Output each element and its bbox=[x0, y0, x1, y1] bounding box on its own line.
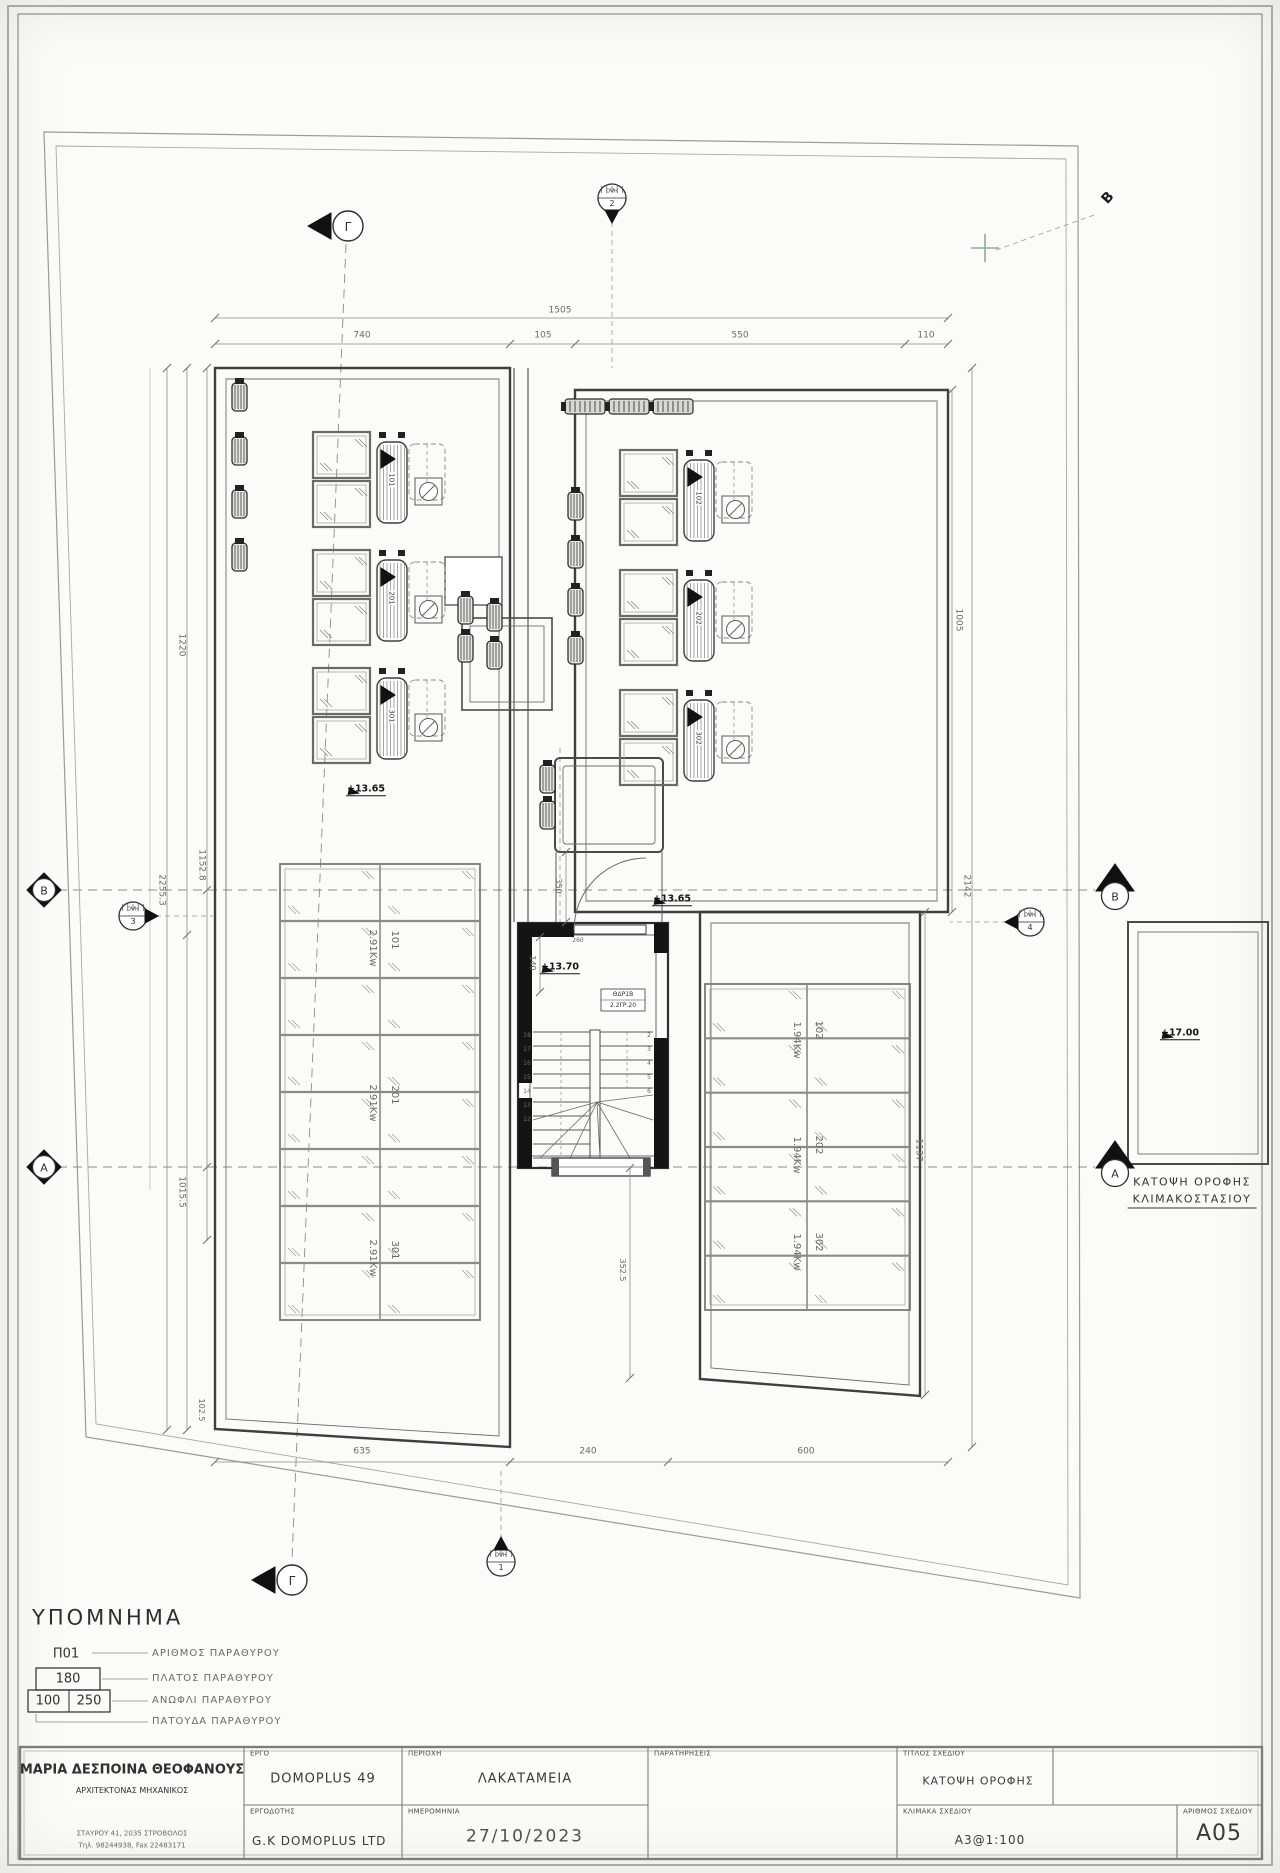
dim-right-2142: 2142 bbox=[962, 875, 971, 898]
detail-caption-line2: ΚΛΙΜΑΚΟΣΤΑΣΙΟΥ bbox=[1128, 1194, 1257, 1209]
grid-marker-gamma-top: Γ bbox=[345, 221, 352, 233]
titleblock-value-date: 27/10/2023 bbox=[466, 1829, 584, 1846]
titleblock-label-title: ΤΙΤΛΟΣ ΣΧΕΔΙΟΥ bbox=[903, 1751, 965, 1758]
dim-left-2255: 2255.3 bbox=[157, 874, 166, 906]
architect-role: ΑΡΧΙΤΕΚΤΟΝΑΣ ΜΗΧΑΝΙΚΟΣ bbox=[76, 1787, 188, 1795]
dim-right-1005: 1005 bbox=[954, 609, 963, 632]
titleblock-label-number: ΑΡΙΘΜΟΣ ΣΧΕΔΙΟΥ bbox=[1183, 1809, 1253, 1816]
legend-tag-number: Π01 bbox=[53, 1648, 79, 1661]
dim-stair-260: 260 bbox=[572, 938, 583, 944]
view-marker-4-name: ΟΨΗ bbox=[1024, 914, 1036, 919]
dim-top-105: 105 bbox=[534, 332, 551, 341]
dim-top-total: 1505 bbox=[549, 307, 572, 316]
heater-number-202: 202 bbox=[695, 610, 702, 625]
grid-marker-a-left: A bbox=[40, 1163, 48, 1174]
legend-item-window-sill: ΠΑΤΟΥΔΑ ΠΑΡΑΘΥΡΟΥ bbox=[152, 1717, 282, 1727]
dim-bottom-240: 240 bbox=[579, 1448, 596, 1457]
stair-door-tag-bottom: 2.2ΓΡ.20 bbox=[610, 1003, 636, 1009]
stair-step-left: 15 bbox=[523, 1075, 531, 1081]
level-roof-right: +13.65 bbox=[652, 894, 692, 906]
grid-marker-b-left: B bbox=[40, 886, 48, 897]
dim-bottom-635: 635 bbox=[353, 1448, 370, 1457]
pv-left-101-power: 2.91Kw bbox=[367, 929, 377, 966]
level-flag-icon bbox=[1158, 1027, 1177, 1048]
legend-tag-lintel-a: 100 bbox=[36, 1695, 61, 1708]
heater-number-302: 302 bbox=[695, 730, 702, 745]
view-marker-2-name: ΟΨΗ bbox=[606, 190, 618, 195]
stair-step-left: 13 bbox=[523, 1103, 531, 1109]
titleblock-value-title: ΚΑΤΟΨΗ ΟΡΟΦΗΣ bbox=[922, 1776, 1033, 1787]
pv-right-102-power: 1.94Kw bbox=[791, 1021, 801, 1058]
level-stair-roof: +17.00 bbox=[1160, 1028, 1200, 1040]
dim-stair-352: 352.5 bbox=[618, 1259, 626, 1282]
level-stair-landing: +13.70 bbox=[540, 962, 580, 974]
titleblock-value-project: DOMOPLUS 49 bbox=[270, 1773, 376, 1786]
view-marker-3-num: 3 bbox=[130, 918, 135, 926]
legend-tag-width: 180 bbox=[56, 1673, 81, 1686]
titleblock-label-area: ΠΕΡΙΟΧΗ bbox=[408, 1751, 442, 1758]
legend-item-window-lintel: ΑΝΩΦΛΙ ΠΑΡΑΘΥΡΟΥ bbox=[152, 1696, 272, 1706]
architect-phone: Τηλ. 98244938, Fax 22483171 bbox=[78, 1843, 185, 1850]
level-flag-icon bbox=[344, 783, 363, 804]
stair-step-right: 6 bbox=[647, 1089, 651, 1095]
heater-number-301: 301 bbox=[388, 708, 395, 723]
stair-step-right: 3 bbox=[647, 1047, 651, 1053]
stair-step-right: 4 bbox=[647, 1061, 651, 1067]
grid-marker-gamma-bottom: Γ bbox=[289, 1575, 296, 1587]
stair-step-left: 18 bbox=[523, 1033, 531, 1039]
legend-title: ΥΠΟΜΝΗΜΑ bbox=[32, 1608, 183, 1629]
plan-labels: 150574010555011012202255.31152.81015.510… bbox=[0, 0, 1280, 1873]
pv-left-201-power: 2.91Kw bbox=[367, 1084, 377, 1121]
level-flag-icon bbox=[538, 961, 557, 982]
view-marker-2-num: 2 bbox=[609, 200, 614, 208]
stair-step-left: 14 bbox=[523, 1089, 531, 1095]
heater-number-201: 201 bbox=[388, 590, 395, 605]
pv-left-301-id: 301 bbox=[389, 1240, 399, 1259]
pv-right-302-id: 302 bbox=[813, 1232, 823, 1251]
architect-name: ΜΑΡΙΑ ΔΕΣΠΟΙΝΑ ΘΕΟΦΑΝΟΥΣ bbox=[20, 1764, 244, 1777]
pv-right-102-id: 102 bbox=[813, 1020, 823, 1039]
titleblock-label-date: ΗΜΕΡΟΜΗΝΙΑ bbox=[408, 1809, 460, 1816]
pv-right-202-power: 1.94Kw bbox=[791, 1136, 801, 1173]
dim-top-110: 110 bbox=[917, 332, 934, 341]
titleblock-label-project: ΕΡΓΟ bbox=[250, 1751, 269, 1758]
titleblock-label-client: ΕΡΓΟΔΟΤΗΣ bbox=[250, 1809, 295, 1816]
dim-top-740: 740 bbox=[353, 332, 370, 341]
dim-left-102: 102.5 bbox=[197, 1399, 205, 1422]
dim-stair-350: 350 bbox=[554, 878, 562, 893]
legend-tag-lintel-b: 250 bbox=[77, 1695, 102, 1708]
grid-marker-b-right: B bbox=[1111, 892, 1119, 903]
level-flag-icon bbox=[650, 893, 669, 914]
stair-step-left: 12 bbox=[523, 1117, 531, 1123]
titleblock-label-scale: ΚΛΙΜΑΚΑ ΣΧΕΔΙΟΥ bbox=[903, 1809, 972, 1816]
view-marker-1-num: 1 bbox=[498, 1564, 503, 1572]
pv-left-101-id: 101 bbox=[389, 930, 399, 949]
level-roof-left: +13.65 bbox=[346, 784, 386, 796]
pv-right-302-power: 1.94Kw bbox=[791, 1233, 801, 1270]
architectural-drawing-sheet: 150574010555011012202255.31152.81015.510… bbox=[0, 0, 1280, 1873]
heater-number-101: 101 bbox=[388, 472, 395, 487]
view-marker-4-num: 4 bbox=[1027, 924, 1032, 932]
view-marker-1-name: ΟΨΗ bbox=[495, 1554, 507, 1559]
pv-left-301-power: 2.91Kw bbox=[367, 1239, 377, 1276]
stair-door-tag-top: ΘΔΡ1Β bbox=[613, 992, 633, 998]
dim-top-550: 550 bbox=[731, 332, 748, 341]
dim-left-1152: 1152.8 bbox=[197, 849, 206, 881]
titleblock-value-area: ΛΑΚΑΤΑΜΕΙΑ bbox=[478, 1773, 572, 1786]
titleblock-label-notes: ΠΑΡΑΤΗΡΗΣΕΙΣ bbox=[654, 1751, 711, 1758]
boundary-label-b: B bbox=[1099, 189, 1117, 206]
pv-right-202-id: 202 bbox=[813, 1135, 823, 1154]
dim-stair-140: 140 bbox=[528, 955, 536, 970]
heater-number-102: 102 bbox=[695, 490, 702, 505]
dim-right-1137: 1137 bbox=[914, 1139, 923, 1162]
dim-left-1220: 1220 bbox=[177, 634, 186, 657]
dim-bottom-600: 600 bbox=[797, 1448, 814, 1457]
legend-item-window-width: ΠΛΑΤΟΣ ΠΑΡΑΘΥΡΟΥ bbox=[152, 1674, 274, 1684]
grid-marker-a-right: A bbox=[1111, 1169, 1119, 1180]
detail-caption-line1: ΚΑΤΟΨΗ ΟΡΟΦΗΣ bbox=[1133, 1177, 1251, 1188]
titleblock-value-client: G.K DOMOPLUS LTD bbox=[252, 1835, 386, 1847]
stair-step-right: 2 bbox=[647, 1033, 651, 1039]
titleblock-value-scale: A3@1:100 bbox=[955, 1834, 1025, 1846]
view-marker-3-name: ΟΨΗ bbox=[127, 908, 139, 913]
pv-left-201-id: 201 bbox=[389, 1085, 399, 1104]
architect-address: ΣΤΑΥΡΟΥ 41, 2035 ΣΤΡΟΒΟΛΟΣ bbox=[77, 1831, 188, 1838]
stair-step-left: 16 bbox=[523, 1061, 531, 1067]
stair-step-left: 17 bbox=[523, 1047, 531, 1053]
stair-step-right: 5 bbox=[647, 1075, 651, 1081]
legend-item-window-number: ΑΡΙΘΜΟΣ ΠΑΡΑΘΥΡΟΥ bbox=[152, 1649, 280, 1659]
dim-left-1015: 1015.5 bbox=[177, 1176, 186, 1208]
titleblock-value-number: A05 bbox=[1196, 1823, 1242, 1845]
